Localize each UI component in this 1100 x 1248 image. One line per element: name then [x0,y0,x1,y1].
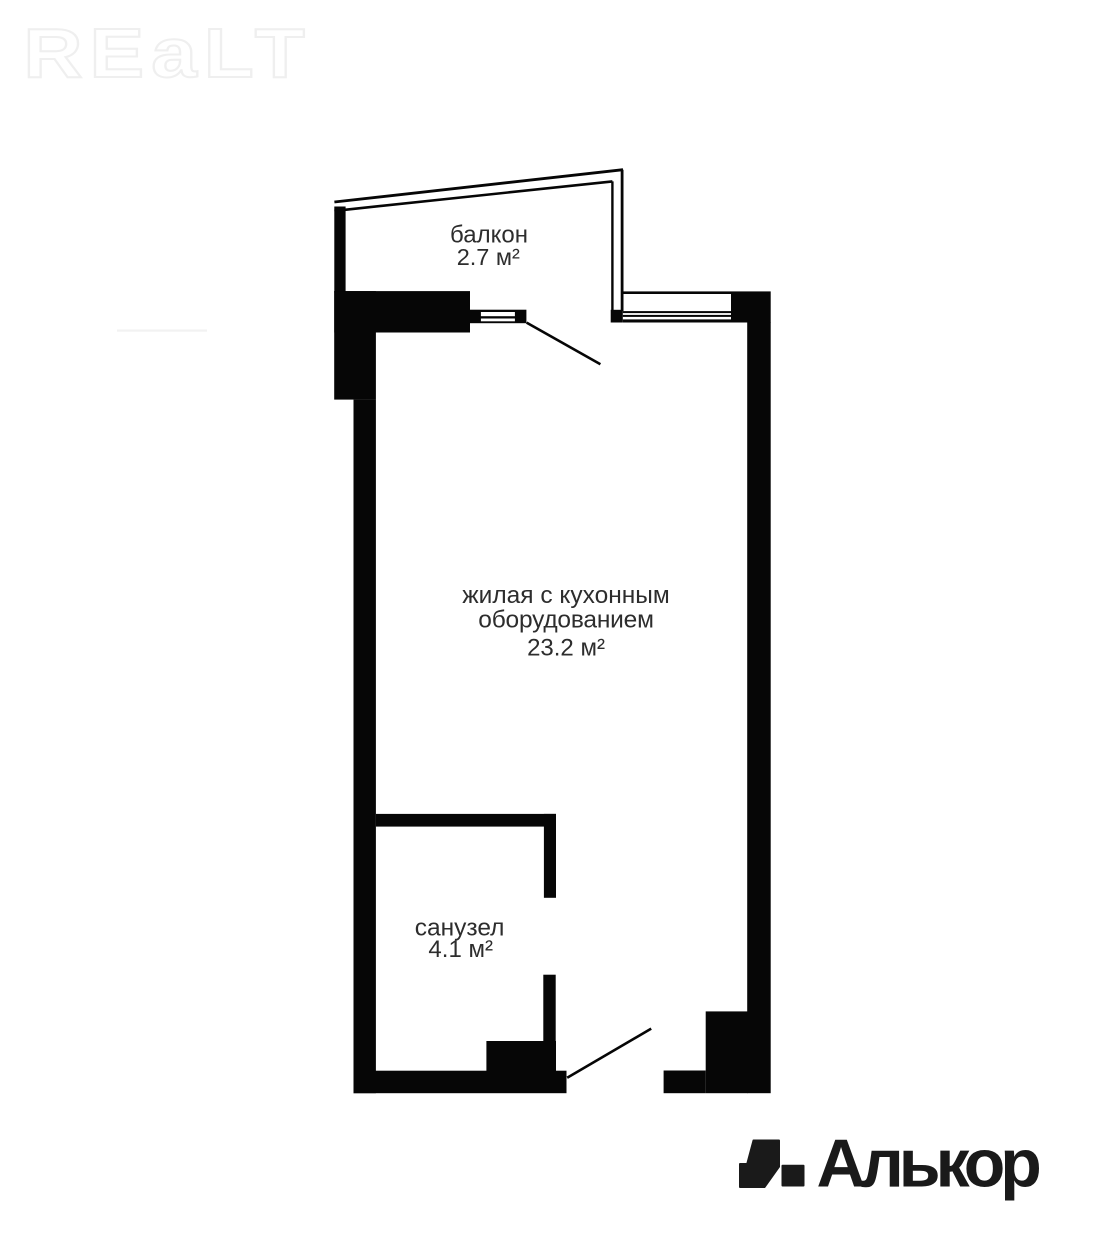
svg-text:4.1 м²: 4.1 м² [428,936,493,963]
svg-text:23.2 м²: 23.2 м² [527,635,605,662]
svg-text:REaLT: REaLT [23,15,311,93]
svg-text:оборудованием: оборудованием [478,607,653,634]
svg-text:2.7 м²: 2.7 м² [457,244,520,270]
svg-text:жилая с кухонным: жилая с кухонным [462,582,669,609]
svg-text:Алькор: Алькор [817,1126,1040,1202]
